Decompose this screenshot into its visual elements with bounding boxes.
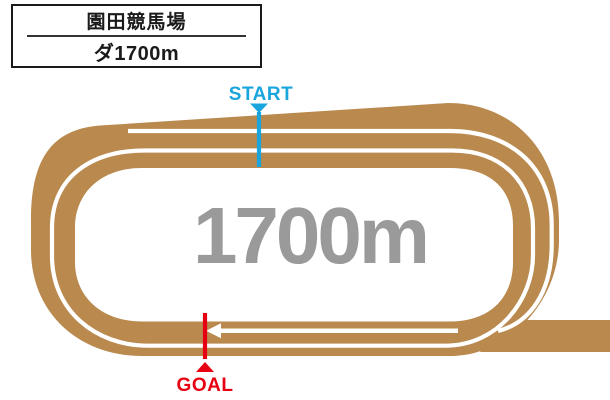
distance-text: 1700m: [193, 191, 427, 280]
goal-triangle-icon: [196, 362, 214, 372]
start-label: START: [229, 84, 293, 105]
venue-name: 園田競馬場: [13, 6, 260, 35]
course-distance-label: ダ1700m: [13, 37, 260, 66]
goal-label: GOAL: [177, 375, 234, 396]
course-info-box: 園田競馬場 ダ1700m: [11, 4, 262, 68]
sonoda-course-diagram: 園田競馬場 ダ1700m 1700m START GOAL: [0, 0, 610, 400]
